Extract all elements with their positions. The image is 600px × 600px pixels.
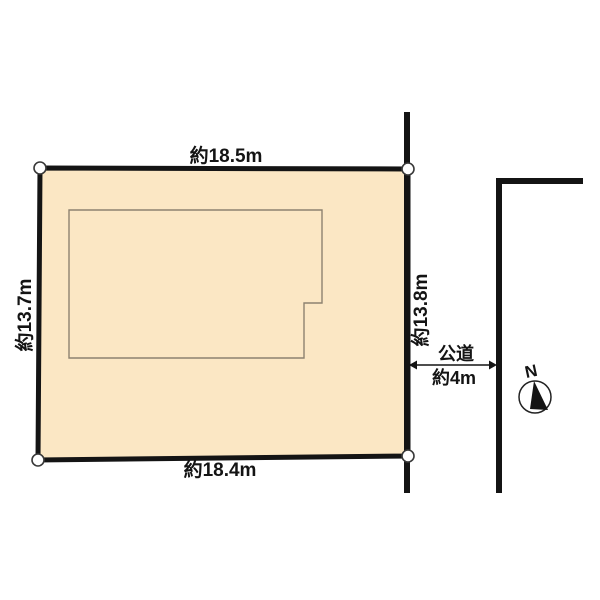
road-right-edge-line [499,181,583,493]
land-plot-diagram: 約18.5m 約18.4m 約13.7m 約13.8m 公道 約4m N [0,0,600,600]
plot-diagram-canvas: 約18.5m 約18.4m 約13.7m 約13.8m 公道 約4m N [0,0,600,600]
road-name-label: 公道 [438,343,474,364]
parcel-outline [38,168,408,460]
road-width-label: 約4m [432,367,476,388]
road-width-arrowhead-right [489,361,497,370]
corner-marker-bottom-right [402,450,414,462]
dimension-label-bottom: 約18.4m [184,458,257,481]
compass-north-label: N [523,361,539,382]
corner-marker-top-left [34,162,46,174]
dimension-label-top: 約18.5m [190,144,263,167]
dimension-label-left: 約13.7m [13,279,36,352]
dimension-label-right: 約13.8m [409,274,432,347]
corner-marker-bottom-left [32,454,44,466]
corner-marker-top-right [402,163,414,175]
